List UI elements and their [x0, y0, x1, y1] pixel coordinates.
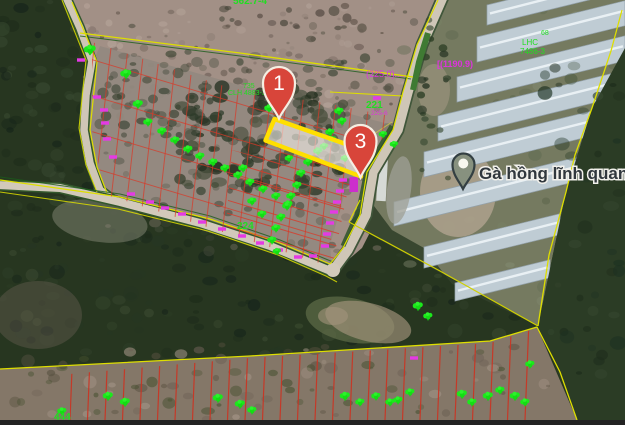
svg-text:444: 444 [54, 412, 71, 420]
svg-text:(225.0)....: (225.0).... [366, 69, 405, 79]
svg-text:225-6: 225-6 [371, 110, 388, 117]
svg-text:7486-3: 7486-3 [520, 47, 545, 56]
svg-text:562.7-4: 562.7-4 [233, 0, 267, 7]
svg-text:2: 2 [300, 167, 304, 174]
svg-text:Gà hồng lĩnh quan: Gà hồng lĩnh quan [479, 164, 625, 183]
svg-text:[(1190.9): [(1190.9) [437, 59, 473, 69]
svg-text:LHC: LHC [522, 38, 538, 47]
svg-text:68: 68 [541, 30, 549, 37]
svg-text:1: 1 [273, 72, 285, 95]
svg-text:CLH 4883-3: CLH 4883-3 [228, 90, 266, 97]
svg-text:3: 3 [355, 130, 367, 153]
svg-text:735: 735 [243, 83, 255, 90]
svg-text:224: 224 [237, 221, 254, 232]
